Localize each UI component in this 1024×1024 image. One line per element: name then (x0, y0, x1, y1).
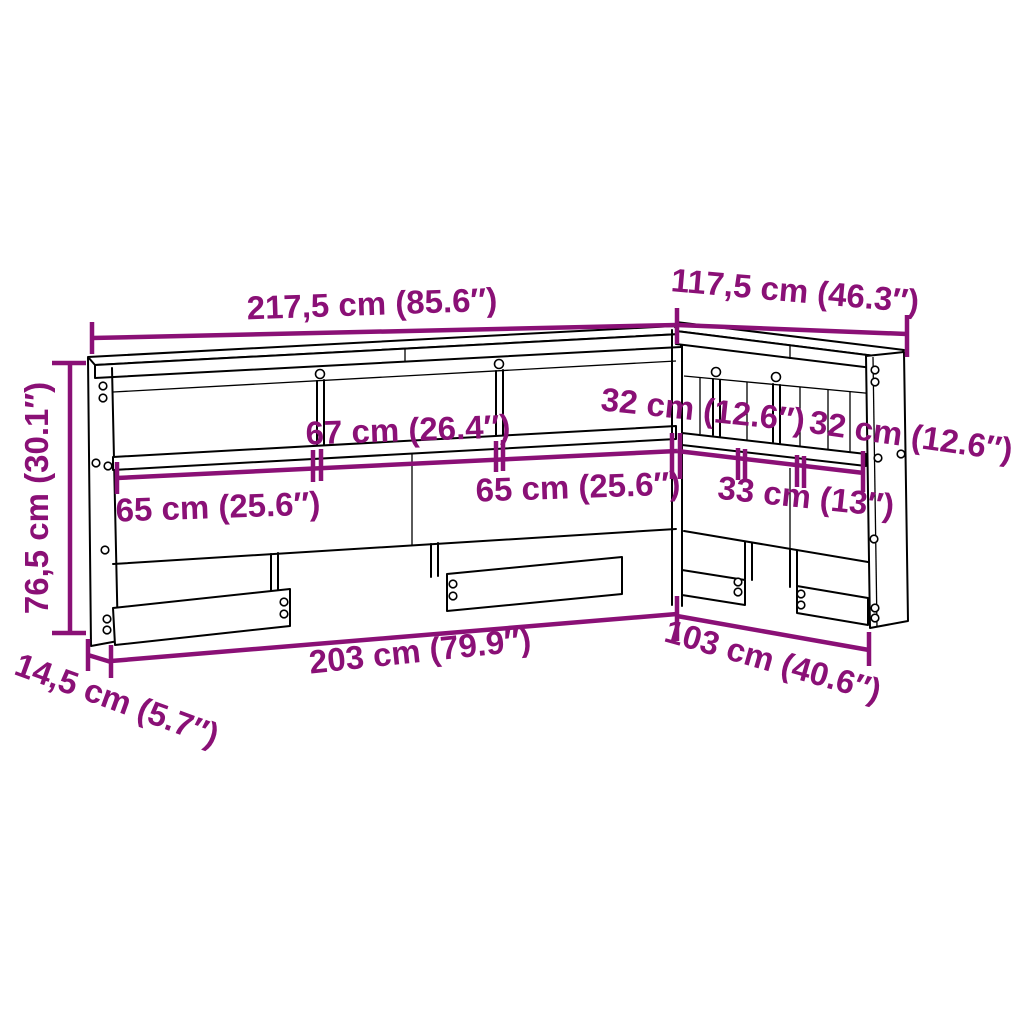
dim-label-side-width: 117,5 cm (46.3″) (670, 261, 921, 320)
pin-hole (871, 604, 879, 612)
peg-hole (316, 370, 325, 379)
dim-label-bottom-side-width: 103 cm (40.6″) (661, 612, 886, 709)
bottom-support-board (113, 589, 290, 645)
pin-hole (871, 614, 879, 622)
bottom-support-board (797, 586, 868, 625)
pin-hole (101, 546, 109, 554)
diagram-canvas: 217,5 cm (85.6″) 117,5 cm (46.3″) 76,5 c… (0, 0, 1024, 1024)
bottom-divider (431, 543, 438, 577)
pin-hole (870, 535, 878, 543)
pin-hole (280, 598, 288, 606)
dim-label-shelf-center: 67 cm (26.4″) (305, 407, 511, 451)
pin-hole (103, 615, 111, 623)
pin-hole (449, 592, 457, 600)
pin-hole (797, 590, 805, 598)
peg-hole (495, 360, 504, 369)
pin-hole (104, 462, 112, 470)
pin-hole (92, 459, 100, 467)
pin-hole (734, 578, 742, 586)
pin-hole (280, 610, 288, 618)
pin-hole (449, 580, 457, 588)
dimension-diagram: 217,5 cm (85.6″) 117,5 cm (46.3″) 76,5 c… (0, 0, 1024, 1024)
dim-label-height: 76,5 cm (30.1″) (18, 382, 55, 614)
back-panel-bottom-edge (113, 529, 676, 564)
pin-hole (99, 382, 107, 390)
pin-hole (874, 454, 882, 462)
pin-hole (871, 378, 879, 386)
bottom-divider (745, 542, 752, 580)
dim-line-depth (88, 655, 111, 662)
bottom-support-board (682, 570, 745, 605)
peg-hole (712, 368, 721, 377)
peg-hole (772, 373, 781, 382)
right-wing (676, 322, 908, 628)
bottom-divider (790, 550, 797, 588)
pin-hole (734, 588, 742, 596)
back-panel-bottom-edge (684, 531, 868, 562)
dim-label-shelf-left: 65 cm (25.6″) (115, 484, 321, 528)
dim-label-bottom-width: 203 cm (79.9″) (307, 620, 533, 680)
dim-label-shelf-right: 65 cm (25.6″) (475, 464, 681, 508)
pin-hole (797, 601, 805, 609)
pin-hole (99, 394, 107, 402)
bottom-divider (271, 553, 278, 591)
pin-hole (871, 366, 879, 374)
bottom-support-board (447, 557, 622, 611)
pin-hole (103, 626, 111, 634)
dim-label-top-width: 217,5 cm (85.6″) (246, 281, 498, 327)
